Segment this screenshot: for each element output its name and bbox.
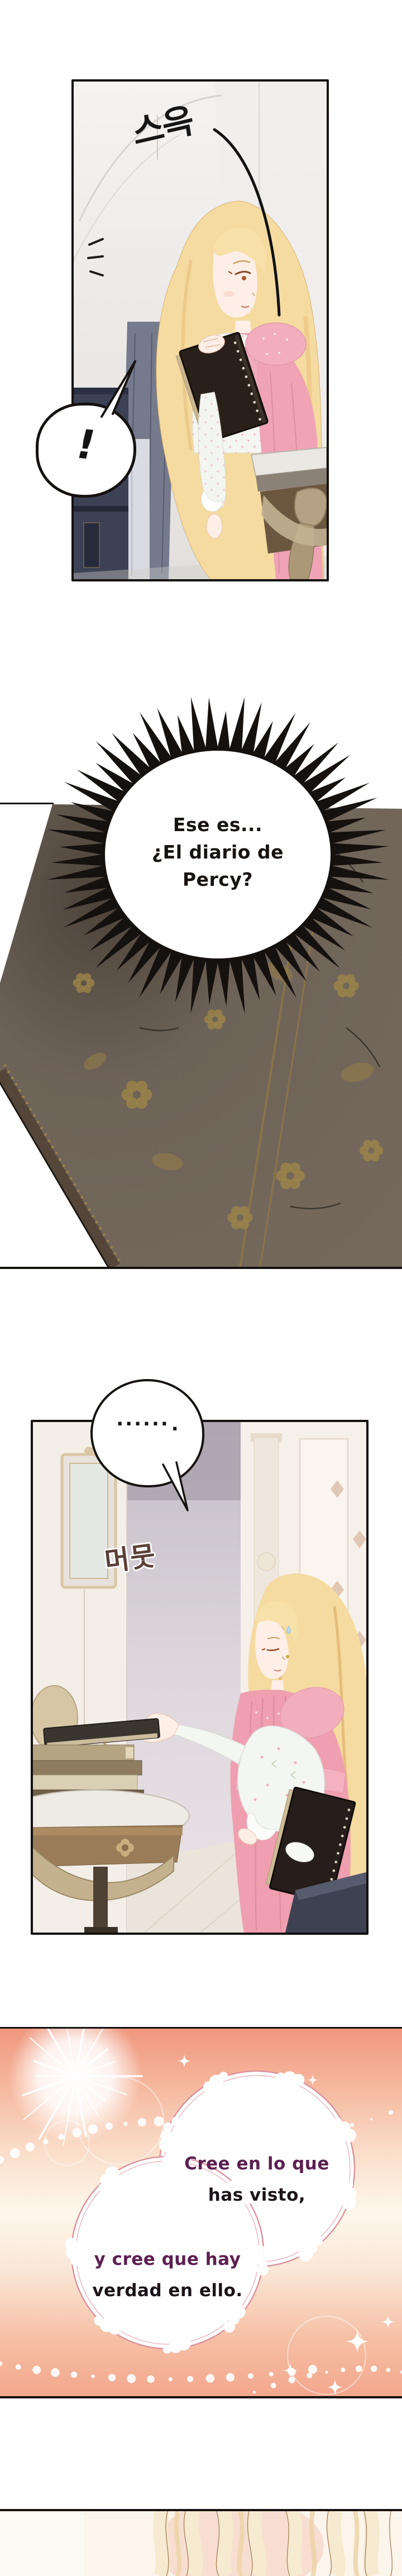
bokeh-string-bottom-right: [232, 2365, 402, 2396]
starburst-glow-icon: [8, 2029, 142, 2143]
panel-hair-closeup: [0, 2509, 402, 2576]
book-cover-section: Ese es... ¿El diario de Percy?: [0, 670, 402, 1269]
ellipsis-text: .......: [93, 1408, 202, 1430]
narration-bubble-2: y cree que hay verdad en ello.: [92, 2244, 242, 2306]
gap-divider-line: [0, 803, 54, 804]
burst-line-2: ¿El diario de: [128, 838, 307, 866]
narration-2-line-2: verdad en ello.: [92, 2275, 242, 2306]
narration-section: Cree en lo que has visto, y cree que hay…: [0, 2027, 402, 2398]
bokeh-string-bottom: [0, 2362, 317, 2383]
earring: [286, 1655, 289, 1658]
panel-library-scene: 스윽 !: [71, 79, 329, 581]
comic-page: 스윽 !: [0, 0, 402, 2576]
pink-decor: [0, 2029, 402, 2396]
ellipsis-bubble-tail: [159, 1461, 200, 1514]
narration-bubble-1: Cree en lo que has visto,: [184, 2148, 329, 2211]
burst-line-3: Percy?: [128, 866, 307, 893]
narration-2-line-1: y cree que hay: [92, 2244, 242, 2275]
left-blank: [0, 2511, 84, 2576]
burst-dialogue: Ese es... ¿El diario de Percy?: [128, 811, 307, 893]
exclaim-text: !: [33, 417, 139, 473]
hair-closeup-art: [0, 2511, 402, 2576]
narration-1-line-1: Cree en lo que: [184, 2148, 329, 2179]
sfx-hesitate-korean: 머뭇: [102, 1534, 158, 1579]
panel1-scene: [74, 82, 327, 579]
book-cover-art: [0, 670, 402, 1267]
narration-1-line-2: has visto,: [184, 2179, 329, 2211]
exclaim-bubble-tail: [96, 358, 141, 422]
burst-line-1: Ese es...: [128, 811, 307, 838]
panel-hesitation-scene: ....... 머뭇: [31, 1420, 368, 1935]
